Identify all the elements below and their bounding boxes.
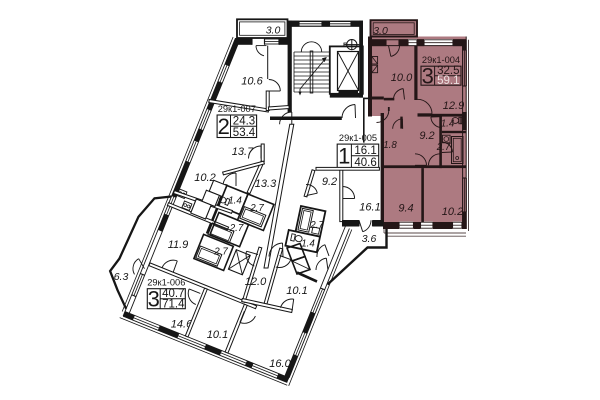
svg-text:16.1: 16.1 bbox=[359, 202, 380, 214]
svg-text:10.1: 10.1 bbox=[286, 285, 307, 297]
svg-text:12.0: 12.0 bbox=[245, 276, 267, 288]
svg-text:3.6: 3.6 bbox=[362, 233, 377, 245]
svg-text:9.4: 9.4 bbox=[398, 203, 413, 215]
svg-text:9.2: 9.2 bbox=[322, 176, 337, 188]
svg-text:10.2: 10.2 bbox=[442, 206, 463, 218]
svg-text:10.1: 10.1 bbox=[207, 329, 228, 341]
svg-text:9.2: 9.2 bbox=[419, 130, 434, 142]
svg-text:6.3: 6.3 bbox=[114, 271, 129, 283]
svg-text:3: 3 bbox=[422, 64, 434, 89]
svg-text:11.9: 11.9 bbox=[168, 239, 189, 251]
svg-text:2.7: 2.7 bbox=[249, 203, 264, 214]
svg-text:2.7: 2.7 bbox=[229, 223, 244, 234]
svg-text:10.6: 10.6 bbox=[241, 76, 263, 88]
svg-text:53.4: 53.4 bbox=[233, 127, 256, 139]
svg-text:1.4: 1.4 bbox=[228, 196, 242, 207]
svg-text:71.4: 71.4 bbox=[162, 298, 185, 310]
svg-text:29к1-007: 29к1-007 bbox=[218, 104, 256, 114]
svg-text:2.7: 2.7 bbox=[309, 220, 324, 231]
svg-text:3.0: 3.0 bbox=[266, 25, 281, 37]
svg-text:1.8: 1.8 bbox=[383, 140, 397, 151]
svg-text:2.7: 2.7 bbox=[213, 247, 228, 258]
svg-text:2: 2 bbox=[218, 114, 230, 139]
svg-text:3.0: 3.0 bbox=[373, 25, 388, 37]
svg-text:59.1: 59.1 bbox=[437, 75, 459, 87]
svg-text:1.4: 1.4 bbox=[441, 119, 455, 130]
svg-text:16.0: 16.0 bbox=[269, 358, 291, 370]
svg-text:29к1-005: 29к1-005 bbox=[339, 133, 377, 143]
svg-text:16.1: 16.1 bbox=[354, 145, 376, 157]
svg-text:2.7: 2.7 bbox=[436, 142, 451, 153]
svg-text:12.9: 12.9 bbox=[443, 100, 464, 112]
svg-text:1.4: 1.4 bbox=[301, 239, 315, 250]
svg-text:24.3: 24.3 bbox=[233, 116, 255, 128]
svg-text:1: 1 bbox=[338, 144, 350, 169]
svg-text:10.0: 10.0 bbox=[391, 72, 413, 84]
svg-text:3: 3 bbox=[148, 287, 160, 312]
svg-text:13.3: 13.3 bbox=[255, 178, 277, 190]
